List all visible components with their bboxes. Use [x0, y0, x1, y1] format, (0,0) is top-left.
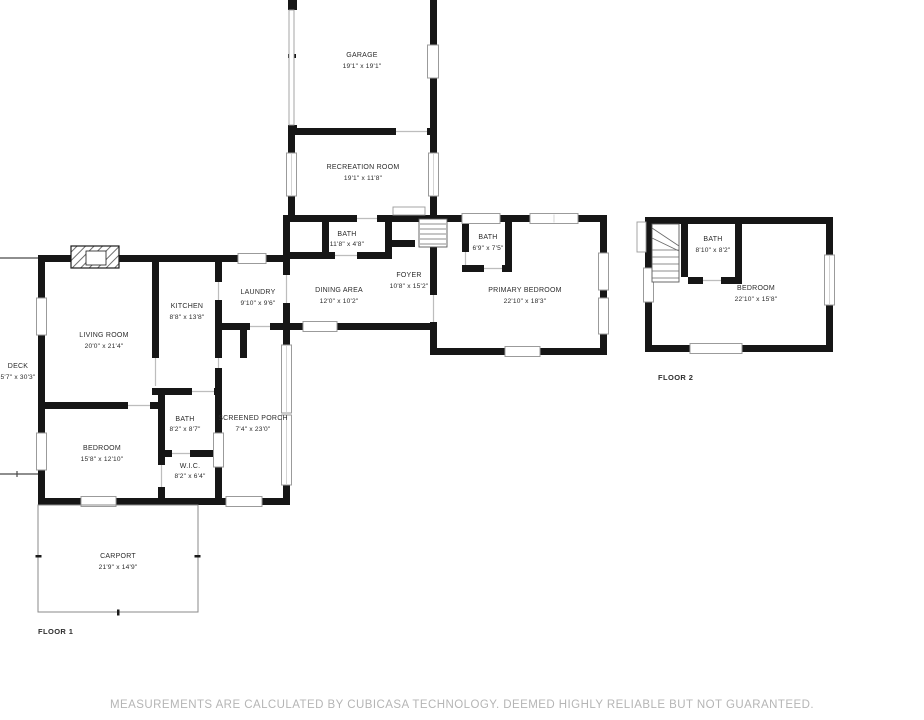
room-dims-kitchen: 8'8" x 13'8" [170, 314, 205, 321]
hall-foyer-dining-walls [283, 215, 437, 505]
window [428, 45, 439, 78]
floorplan-drawing: GARAGE 19'1" x 19'1" RECREATION ROOM 19'… [0, 0, 924, 720]
room-dims-deck: 5'7" x 30'3" [1, 374, 36, 381]
window [37, 298, 47, 335]
garage-recreation-walls [288, 0, 437, 222]
floor2-title: FLOOR 2 [658, 373, 693, 382]
room-dims-foyer: 10'8" x 15'2" [390, 283, 429, 290]
room-label-dining: DINING AREA [315, 287, 363, 294]
window [37, 433, 47, 470]
room-label-garage: GARAGE [346, 52, 378, 59]
room-label-primary-bedroom: PRIMARY BEDROOM [488, 287, 562, 294]
room-dims-laundry: 9'10" x 9'6" [241, 300, 276, 307]
room-label-laundry: LAUNDRY [240, 289, 275, 296]
room-dims-hall-bath: 11'8" x 4'8" [330, 241, 365, 248]
room-label-bath2: BATH [703, 236, 722, 243]
room-dims-dining: 12'0" x 10'2" [320, 298, 359, 305]
room-label-kitchen: KITCHEN [171, 303, 203, 310]
floor1-plan: GARAGE 19'1" x 19'1" RECREATION ROOM 19'… [0, 0, 609, 636]
garage-door [289, 10, 294, 125]
room-label-living: LIVING ROOM [79, 332, 128, 339]
measurement-disclaimer: MEASUREMENTS ARE CALCULATED BY CUBICASA … [0, 699, 924, 711]
room-dims-primary-bedroom: 22'10" x 18'3" [504, 298, 547, 305]
floor1-title: FLOOR 1 [38, 627, 73, 636]
floor2-staircase [652, 224, 679, 282]
staircase [419, 219, 447, 247]
window [226, 497, 262, 507]
window [505, 347, 540, 357]
room-dims-living: 20'0" x 21'4" [85, 343, 124, 350]
room-label-bedroom2: BEDROOM [737, 285, 775, 292]
fireplace [71, 246, 119, 268]
window [303, 322, 337, 332]
room-dims-bath2: 8'10" x 8'2" [696, 247, 731, 254]
foyer-entry-step [393, 207, 425, 215]
room-dims-bedroom2: 22'10" x 15'8" [735, 296, 778, 303]
room-label-primary-bath: BATH [478, 234, 497, 241]
room-label-wic: W.I.C. [180, 463, 201, 470]
room-label-carport: CARPORT [100, 553, 136, 560]
room-label-bedroom: BEDROOM [83, 445, 121, 452]
room-dims-primary-bath: 6'9" x 7'5" [472, 245, 503, 252]
room-dims-carport: 21'9" x 14'9" [99, 564, 138, 571]
room-dims-bath: 8'2" x 8'7" [169, 426, 200, 433]
window [238, 254, 266, 264]
primary-suite-walls [437, 215, 607, 355]
window [690, 344, 742, 354]
room-dims-recreation: 19'1" x 11'8" [344, 175, 383, 182]
floorplan-page: GARAGE 19'1" x 19'1" RECREATION ROOM 19'… [0, 0, 924, 720]
window [214, 433, 224, 467]
stair-bumpout [637, 222, 646, 252]
floor2-plan: BATH 8'10" x 8'2" BEDROOM 22'10" x 15'8"… [637, 217, 835, 382]
carport-outline [36, 505, 201, 616]
window [462, 214, 500, 224]
floor1-labels: GARAGE 19'1" x 19'1" RECREATION ROOM 19'… [1, 52, 562, 571]
floor1-windows [37, 45, 609, 507]
room-label-deck: DECK [8, 363, 29, 370]
room-label-bath: BATH [175, 416, 194, 423]
room-dims-wic: 8'2" x 6'4" [174, 473, 205, 480]
room-label-recreation: RECREATION ROOM [327, 164, 400, 171]
room-dims-garage: 19'1" x 19'1" [343, 63, 382, 70]
room-label-hall-bath: BATH [337, 231, 356, 238]
window [599, 298, 609, 334]
room-label-screened-porch: SCREENED PORCH [218, 415, 288, 422]
room-label-foyer: FOYER [396, 272, 421, 279]
room-dims-bedroom: 15'8" x 12'10" [81, 456, 124, 463]
window [599, 253, 609, 290]
room-dims-screened-porch: 7'4" x 23'0" [236, 426, 271, 433]
